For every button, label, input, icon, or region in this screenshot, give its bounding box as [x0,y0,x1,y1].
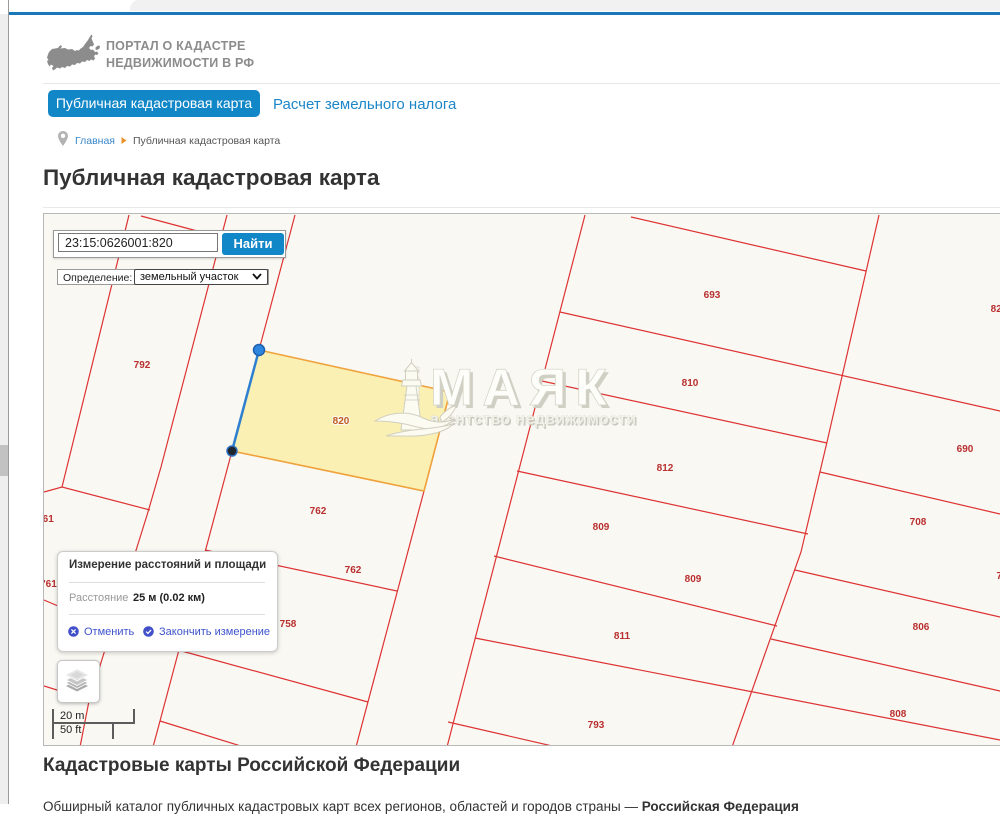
svg-text:820: 820 [991,304,1000,315]
svg-text:808: 808 [890,709,907,720]
svg-text:758: 758 [280,619,297,630]
svg-text:793: 793 [588,720,605,731]
svg-text:'61: '61 [44,579,57,590]
svg-text:708: 708 [910,517,927,528]
svg-text:810: 810 [682,378,699,389]
svg-text:792: 792 [134,360,151,371]
svg-text:70: 70 [996,571,1000,582]
svg-text:809: 809 [593,522,610,533]
svg-text:агентство недвижимости: агентство недвижимости [430,411,637,428]
svg-text:762: 762 [310,506,327,517]
svg-text:812: 812 [657,463,674,474]
svg-text:'61: '61 [44,514,54,525]
svg-text:693: 693 [704,290,721,301]
svg-text:МАЯК: МАЯК [430,359,616,417]
svg-text:690: 690 [957,444,974,455]
svg-text:762: 762 [345,565,362,576]
svg-text:806: 806 [913,622,930,633]
svg-text:809: 809 [685,574,702,585]
svg-text:811: 811 [614,631,631,642]
svg-text:820: 820 [333,416,350,427]
